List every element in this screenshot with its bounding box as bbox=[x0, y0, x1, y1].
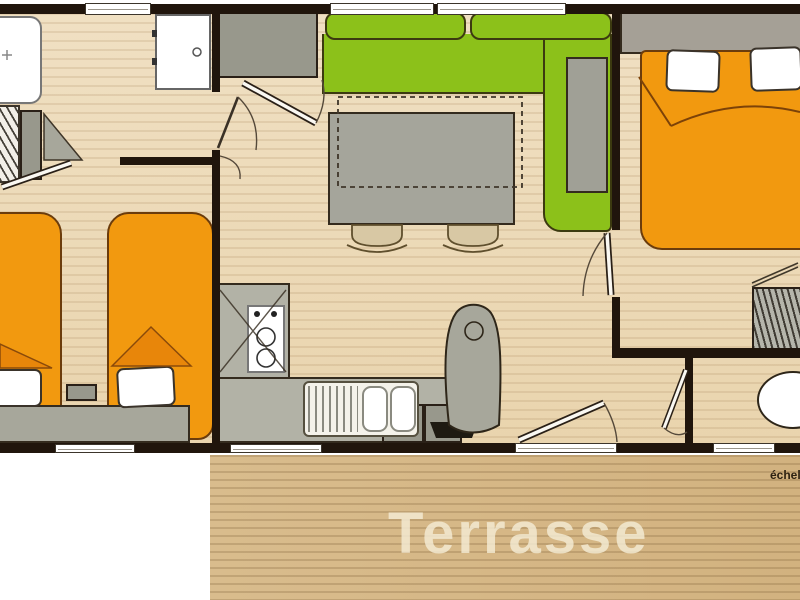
sliding-door-sill-icon bbox=[515, 443, 617, 453]
nightstand-icon bbox=[66, 384, 97, 401]
wall bbox=[612, 4, 620, 230]
wardrobe-icon bbox=[752, 287, 800, 355]
window-icon bbox=[55, 444, 135, 453]
wall bbox=[120, 157, 218, 165]
pillow-icon bbox=[116, 366, 176, 409]
cabinet-door-icon bbox=[424, 404, 462, 443]
terrace-label: Terrasse bbox=[388, 500, 650, 567]
pillow-icon bbox=[665, 49, 720, 93]
window-icon bbox=[437, 3, 566, 15]
cabinet-icon bbox=[20, 110, 42, 180]
wall bbox=[612, 348, 800, 358]
window-icon bbox=[330, 3, 434, 15]
side-table-icon bbox=[566, 57, 608, 193]
floorplan-canvas: Terrasse échelle bbox=[0, 0, 800, 600]
shower-door-icon bbox=[155, 14, 211, 90]
sink-drainer-icon bbox=[308, 386, 358, 432]
scale-label: échelle bbox=[770, 468, 800, 482]
storage-cabinet-icon bbox=[218, 8, 318, 78]
sink-bowl-icon bbox=[390, 386, 416, 432]
headboard-shelf-icon bbox=[0, 405, 190, 443]
pillow-icon bbox=[749, 46, 800, 92]
window-icon bbox=[713, 443, 775, 453]
sofa-cushion-icon bbox=[325, 12, 466, 40]
window-icon bbox=[85, 3, 151, 15]
pillow-icon bbox=[0, 369, 42, 407]
shelf-unit-icon bbox=[0, 105, 20, 183]
dining-table-icon bbox=[328, 112, 515, 225]
wall bbox=[212, 150, 220, 443]
sink-bowl-icon bbox=[362, 386, 388, 432]
wall bbox=[685, 358, 693, 443]
sofa-cushion-icon bbox=[470, 12, 612, 40]
cooktop-icon bbox=[247, 305, 285, 373]
bathtub-icon bbox=[0, 16, 42, 104]
window-icon bbox=[230, 444, 322, 453]
wall bbox=[212, 4, 220, 92]
